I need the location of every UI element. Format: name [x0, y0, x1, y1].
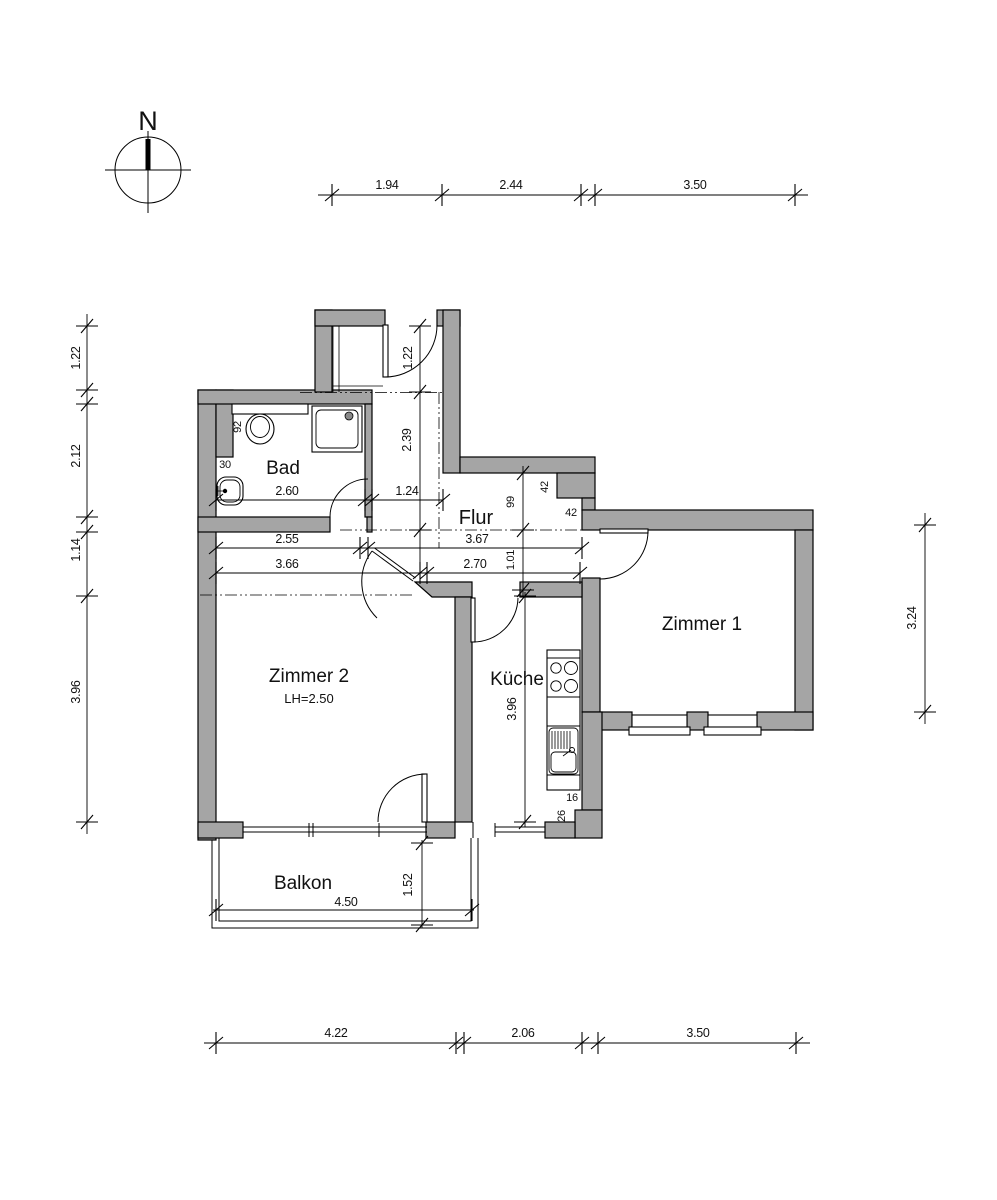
wall-bottom-b [426, 822, 455, 838]
wall-step-2 [582, 498, 595, 510]
dim-bottom-2: 2.06 [511, 1026, 534, 1040]
dim-flur-seg3: 3.66 [275, 557, 298, 571]
dim-bad-fixture: 92 [232, 421, 244, 433]
dim-right-1: 3.24 [905, 606, 919, 629]
shower [312, 406, 362, 452]
dim-bad-niche: 30 [219, 459, 231, 471]
balcony-door [378, 774, 427, 822]
dim-kueche-26: 26 [556, 810, 568, 822]
wall-entry-east [443, 310, 460, 473]
floor-plan-drawing: N [0, 0, 997, 1200]
room-label-zimmer2: Zimmer 2 [269, 666, 349, 687]
north-compass: N [105, 106, 191, 213]
windows [243, 715, 761, 838]
wall-zimmer1-east [795, 530, 813, 730]
dim-top-2: 2.44 [499, 178, 522, 192]
dim-left [76, 314, 98, 834]
wall-entry-top-left [315, 310, 385, 326]
walls [198, 310, 813, 840]
dim-kueche-16: 16 [566, 792, 578, 804]
dim-bottom-3: 3.50 [686, 1026, 709, 1040]
dim-step-2: 42 [565, 507, 577, 519]
dim-left-1: 1.22 [69, 346, 83, 369]
dim-balkon-width-label: 4.50 [334, 895, 357, 909]
wall-bottom-a [198, 822, 243, 838]
balcony-railing [212, 838, 478, 928]
wall-flur-north [460, 457, 595, 473]
dim-flur-h1: 99 [505, 496, 517, 508]
dim-flur-row1 [209, 537, 589, 559]
labels: Bad Flur Zimmer 1 Zimmer 2 LH=2.50 Küche… [69, 178, 919, 1040]
north-label: N [138, 106, 158, 136]
dim-flur-h2: 1.01 [505, 550, 517, 570]
dim-flur-seg4: 2.70 [463, 557, 486, 571]
dim-corridor-width: 1.24 [395, 484, 418, 498]
dim-corridor-depth: 2.39 [400, 428, 414, 451]
wall-kueche-corner [575, 810, 602, 838]
dim-balkon-depth-label: 1.52 [401, 873, 415, 896]
dim-step-1: 42 [539, 481, 551, 493]
wall-bottom-c [545, 822, 575, 838]
wall-zimmer2-kueche-partition [455, 597, 472, 822]
zimmer1-door [600, 529, 648, 579]
zimmer2-door [362, 548, 416, 618]
wall-zimmer2-north-chamfer [415, 582, 472, 597]
wall-step-1 [557, 473, 595, 498]
wall-zimmer1-south-a [600, 712, 632, 730]
wall-kueche-east [582, 712, 602, 810]
shower-drain-icon [345, 412, 353, 420]
entry-closet [333, 326, 383, 392]
bathroom-sink [216, 477, 243, 505]
room-label-zimmer1: Zimmer 1 [662, 614, 742, 635]
bad-door [330, 479, 368, 517]
bad-shelf [232, 404, 308, 414]
zimmer2-window [243, 823, 427, 837]
room-label-bad: Bad [266, 458, 300, 479]
dim-bottom [204, 1032, 810, 1054]
room-label-flur: Flur [459, 507, 494, 529]
dim-bad-width: 2.60 [275, 484, 298, 498]
dim-flur-seg1: 2.55 [275, 532, 298, 546]
kueche-door [471, 598, 518, 642]
wall-zimmer1-north [582, 510, 813, 530]
floor-plan-page: N [0, 0, 997, 1200]
wall-bad-south-a [198, 517, 330, 532]
wall-zimmer1-west [582, 578, 600, 712]
toilet [246, 414, 274, 444]
room-label-kueche: Küche [490, 669, 544, 690]
dim-top-3: 3.50 [683, 178, 706, 192]
dim-flur-seg2: 3.67 [465, 532, 488, 546]
faucet-icon [223, 489, 227, 493]
room-label-balkon: Balkon [274, 873, 332, 894]
dim-kueche-depth: 3.96 [505, 697, 519, 720]
wall-zimmer1-south-b [757, 712, 813, 730]
dim-bottom-1: 4.22 [324, 1026, 347, 1040]
kueche-window [473, 822, 545, 838]
room-note-zimmer2-height: LH=2.50 [284, 691, 334, 706]
dim-left-4: 3.96 [69, 680, 83, 703]
dim-entry-depth: 1.22 [401, 346, 415, 369]
dim-flur-heights [512, 466, 534, 597]
wall-left-exterior [198, 390, 216, 840]
dim-top-1: 1.94 [375, 178, 398, 192]
dim-left-3: 1.14 [69, 538, 83, 561]
dim-left-2: 2.12 [69, 444, 83, 467]
